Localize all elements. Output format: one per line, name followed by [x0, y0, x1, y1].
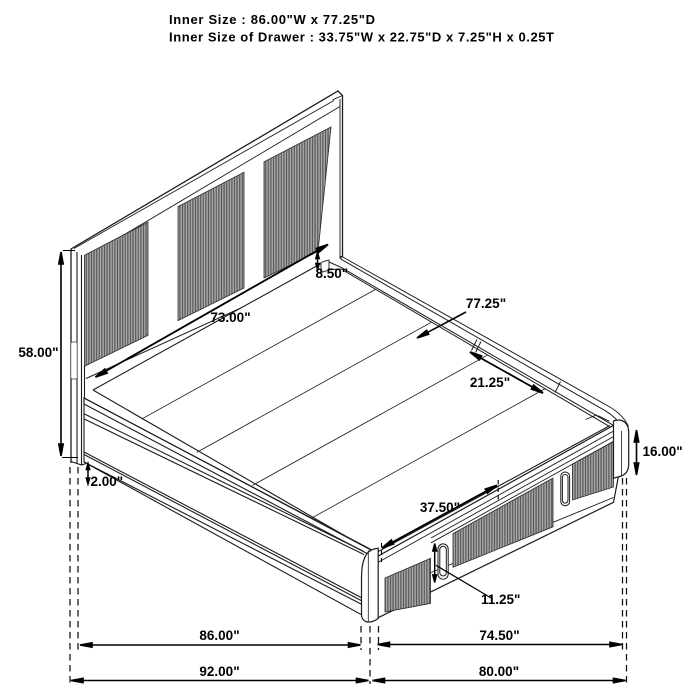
svg-text:37.50": 37.50" — [420, 500, 460, 515]
svg-text:58.00": 58.00" — [18, 345, 58, 360]
svg-text:2.00": 2.00" — [91, 474, 124, 489]
svg-text:86.00": 86.00" — [199, 628, 239, 643]
svg-text:80.00": 80.00" — [479, 664, 519, 679]
svg-text:21.25": 21.25" — [470, 375, 510, 390]
svg-text:92.00": 92.00" — [199, 664, 239, 679]
svg-text:Inner Size of Drawer : 33.75"W: Inner Size of Drawer : 33.75"W x 22.75"D… — [169, 30, 554, 45]
svg-text:8.50": 8.50" — [316, 266, 349, 281]
svg-text:73.00": 73.00" — [210, 310, 250, 325]
svg-text:Inner Size : 86.00"W x 77.25"D: Inner Size : 86.00"W x 77.25"D — [169, 12, 375, 27]
svg-text:16.00": 16.00" — [643, 444, 683, 459]
svg-text:11.25": 11.25" — [481, 592, 520, 607]
svg-text:74.50": 74.50" — [479, 628, 519, 643]
svg-text:77.25": 77.25" — [466, 296, 506, 311]
